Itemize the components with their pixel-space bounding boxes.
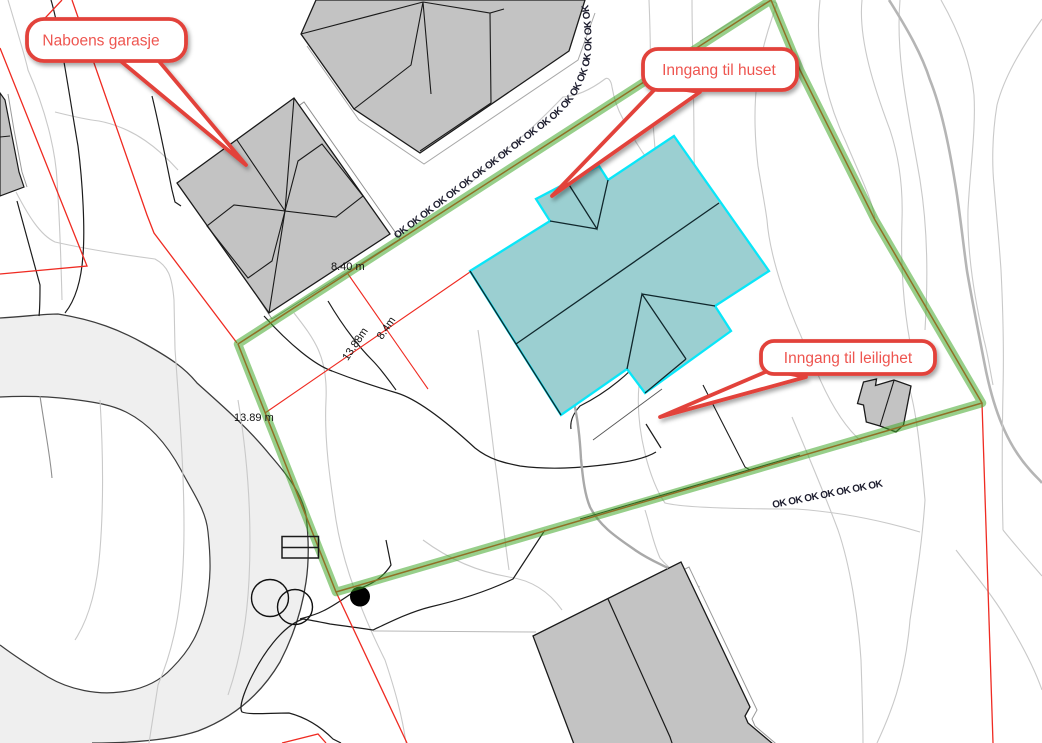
svg-text:Inngang til huset: Inngang til huset — [662, 62, 776, 79]
svg-text:13.89 m: 13.89 m — [234, 412, 274, 424]
svg-text:Naboens garasje: Naboens garasje — [42, 33, 159, 50]
svg-text:Inngang til leilighet: Inngang til leilighet — [784, 350, 913, 367]
svg-text:8.40 m: 8.40 m — [331, 261, 365, 273]
